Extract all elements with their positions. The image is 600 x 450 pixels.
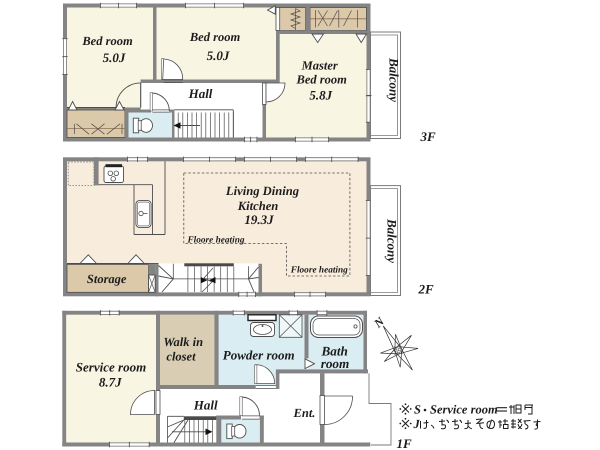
svg-text:5.8J: 5.8J: [309, 88, 332, 103]
svg-text:Balcony: Balcony: [387, 57, 402, 102]
svg-text:Service room: Service room: [430, 403, 498, 417]
svg-text:8.7J: 8.7J: [99, 375, 122, 390]
svg-text:Floore heating: Floore heating: [186, 236, 244, 246]
svg-text:S: S: [414, 403, 421, 417]
svg-text:Service room: Service room: [76, 360, 146, 375]
svg-text:5.0J: 5.0J: [103, 50, 126, 65]
svg-text:Balcony: Balcony: [385, 218, 400, 263]
svg-text:19.3J: 19.3J: [244, 212, 274, 227]
svg-text:3F: 3F: [420, 129, 437, 144]
svg-text:Floore heating: Floore heating: [290, 266, 348, 276]
svg-text:Bed room: Bed room: [81, 34, 133, 48]
svg-text:2F: 2F: [418, 282, 435, 297]
svg-text:closet: closet: [166, 350, 196, 364]
svg-text:Living Dining: Living Dining: [225, 184, 299, 198]
svg-text:5.0J: 5.0J: [207, 48, 230, 63]
svg-text:Ent.: Ent.: [293, 406, 316, 420]
svg-text:room: room: [321, 356, 350, 371]
svg-text:Bed room: Bed room: [296, 73, 348, 87]
svg-text:Kitchen: Kitchen: [237, 199, 279, 213]
svg-text:1F: 1F: [397, 436, 413, 450]
svg-text:Bed room: Bed room: [189, 30, 241, 44]
svg-text:J: J: [413, 417, 421, 431]
svg-text:Hall: Hall: [193, 398, 218, 413]
svg-text:Master: Master: [301, 59, 338, 73]
svg-text:Walk in: Walk in: [163, 335, 203, 349]
svg-text:Powder room: Powder room: [223, 348, 295, 363]
svg-text:Hall: Hall: [188, 86, 213, 101]
svg-text:Storage: Storage: [87, 272, 127, 286]
